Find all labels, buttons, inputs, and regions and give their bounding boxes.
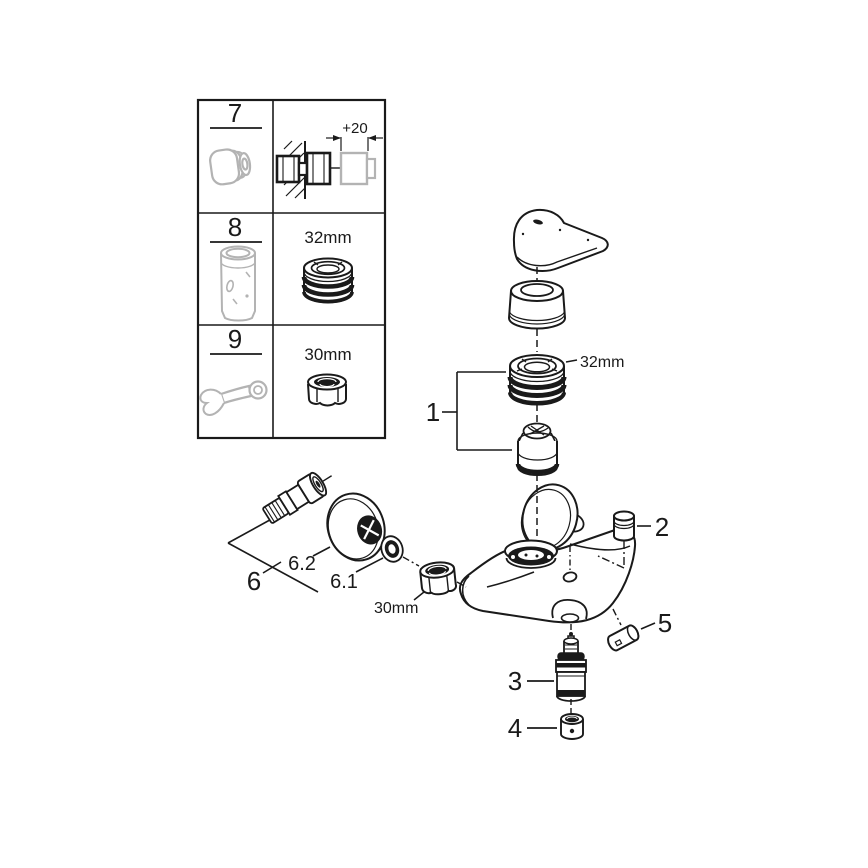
callout-5-leader [641, 623, 655, 629]
callout-2-label: 2 [655, 512, 669, 542]
part-5-center-line [613, 609, 621, 625]
plug-part-5-drawing [606, 624, 641, 653]
callout-3-label: 3 [508, 666, 522, 696]
row-8-size-label: 32mm [304, 228, 351, 247]
union-nut-size-leader [414, 592, 424, 600]
row-7-number: 7 [228, 98, 242, 128]
union-nut-size-label: 30mm [374, 600, 418, 617]
washer-nut-center-line [403, 557, 419, 566]
ring-nut-32mm-icon [304, 259, 352, 303]
ring-nut-drawing [510, 355, 564, 405]
plug-part-2-drawing [614, 512, 634, 541]
callout-1-label: 1 [426, 397, 440, 427]
nut-30mm-icon [308, 375, 346, 406]
callout-6-2-label: 6.2 [288, 553, 316, 575]
callout-5-label: 5 [658, 608, 672, 638]
ring-nut-size-label: 32mm [580, 354, 624, 371]
row-9-size-label: 30mm [304, 345, 351, 364]
cartridge-socket-icon [221, 247, 255, 321]
cartridge-seat-drawing [505, 541, 557, 569]
bushing-part-4-drawing [561, 714, 583, 739]
diverter-part-3-drawing [556, 632, 586, 701]
union-nut-drawing [419, 561, 456, 596]
parts-diagram-page: 7 [0, 0, 868, 868]
row-9-number: 9 [228, 324, 242, 354]
exploded-diagram-canvas: 7 [0, 0, 868, 868]
ring-nut-size-leader [566, 360, 577, 362]
callout-6-label: 6 [247, 566, 261, 596]
callout-1-bracket [442, 372, 512, 450]
escutcheon-drawing [319, 486, 393, 568]
lever-handle-drawing [514, 210, 608, 271]
row-8-number: 8 [228, 212, 242, 242]
dimension-20-label: +20 [342, 120, 367, 137]
callout-4-label: 4 [508, 713, 522, 743]
cartridge-drawing [518, 424, 557, 476]
tools-table: 7 [198, 98, 385, 438]
handle-cap-drawing [509, 281, 565, 329]
callout-6-1-label: 6.1 [330, 571, 358, 593]
